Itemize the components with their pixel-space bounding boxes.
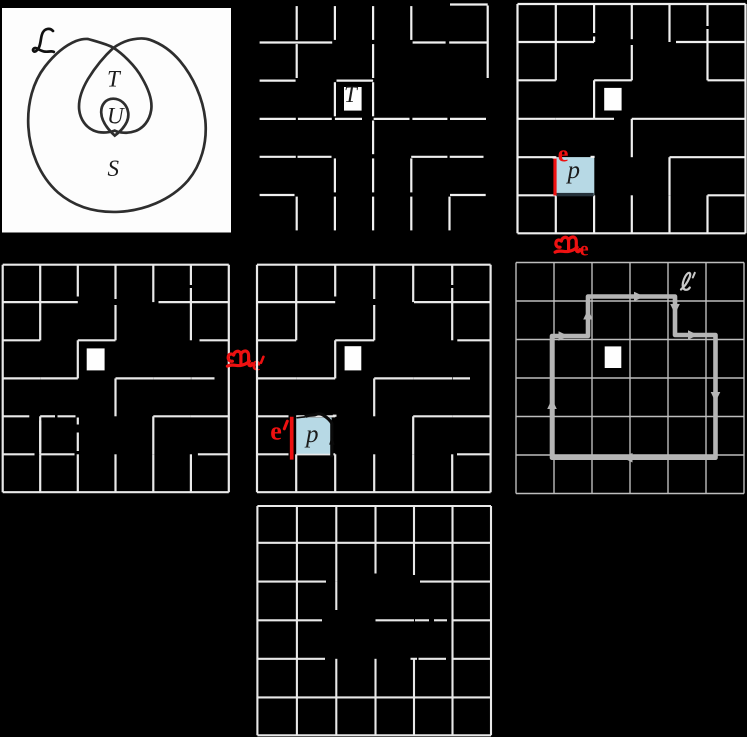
svg-text:p: p bbox=[304, 421, 319, 448]
svg-text:e: e bbox=[270, 416, 282, 445]
svg-text:T: T bbox=[107, 67, 122, 92]
svg-text:e: e bbox=[558, 142, 569, 168]
svg-text:e: e bbox=[580, 239, 589, 261]
svg-text:U: U bbox=[107, 104, 125, 129]
svg-text:S: S bbox=[108, 156, 120, 181]
svg-text:T: T bbox=[344, 82, 359, 107]
